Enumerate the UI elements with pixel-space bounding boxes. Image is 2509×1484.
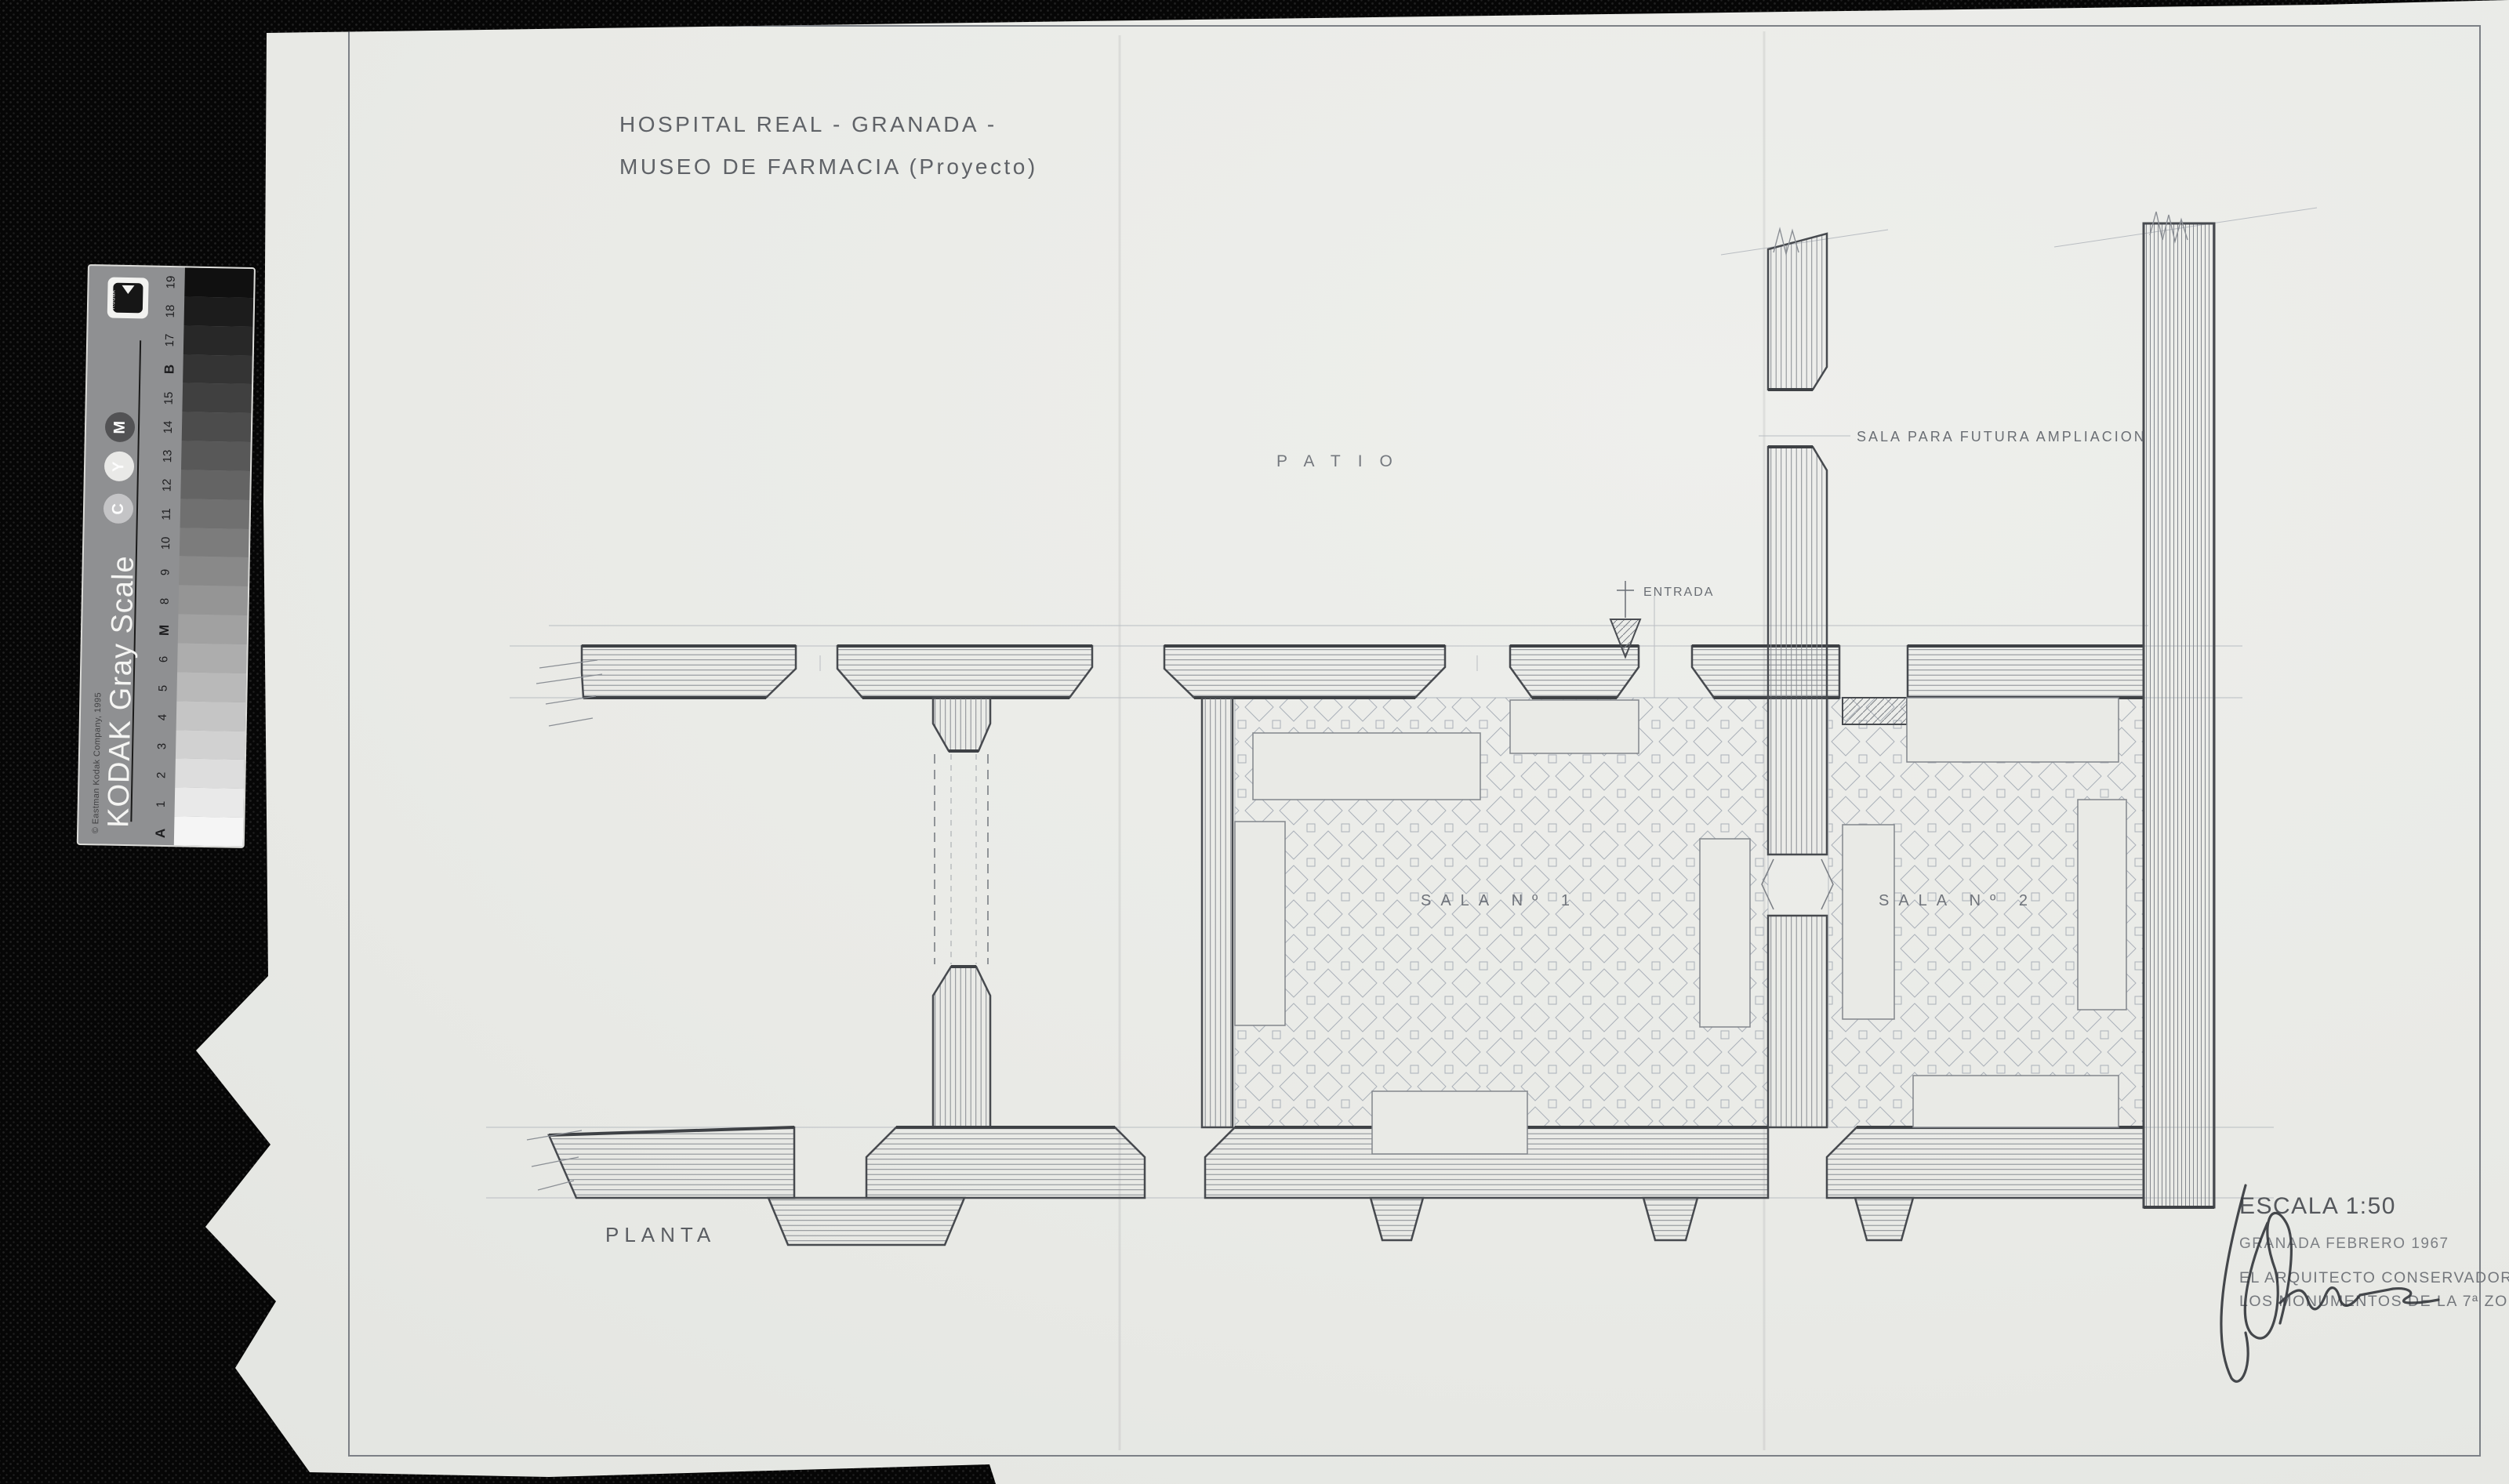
patio-column: [933, 698, 990, 1127]
entrance-label: ENTRADA: [1643, 586, 1714, 599]
gray-patch-1: [174, 787, 244, 818]
east-wall: [2144, 212, 2214, 1207]
door-sill-hatch: [1843, 698, 1907, 724]
magenta-dot: M: [105, 412, 136, 442]
place-date-label: GRANADA FEBRERO 1967: [2239, 1235, 2449, 1252]
partition-wall: [1762, 698, 1833, 1127]
gray-scale-patches: [174, 267, 254, 847]
gray-step-label-4: 4: [155, 707, 171, 727]
gray-patch-17: [183, 325, 253, 356]
gray-step-label-5: 5: [155, 678, 171, 698]
future-hall-label: SALA PARA FUTURA AMPLIACION: [1857, 429, 2147, 444]
gray-patch-B: [183, 354, 252, 385]
gray-step-label-11: 11: [159, 504, 175, 524]
gray-step-label-19: 19: [163, 271, 179, 292]
gray-step-label-8: 8: [158, 591, 173, 611]
patio-label: PATIO: [1276, 452, 1410, 470]
gray-step-label-M: M: [157, 620, 172, 640]
gray-step-label-10: 10: [158, 533, 174, 553]
gray-patch-5: [176, 672, 246, 702]
gray-patch-9: [179, 557, 249, 587]
gray-patch-18: [184, 296, 254, 327]
gray-step-label-B: B: [162, 358, 177, 379]
north-wall-piers: [582, 646, 2144, 698]
room1-west-wall: [1202, 698, 1233, 1127]
drawing-sheet: HOSPITAL REAL - GRANADA - MUSEO DE FARMA…: [0, 0, 2509, 1484]
plan-caption: PLANTA: [605, 1223, 716, 1246]
gray-patch-13: [181, 441, 251, 471]
sketch-strokes: [527, 660, 602, 1190]
gray-patch-4: [176, 701, 246, 731]
floor-plan-drawing: HOSPITAL REAL - GRANADA - MUSEO DE FARMA…: [0, 0, 2509, 1484]
gray-step-label-13: 13: [160, 446, 176, 466]
gray-patch-6: [177, 643, 247, 673]
scanned-photo: { "sheet": { "title_line1": "HOSPITAL RE…: [0, 0, 2509, 1484]
architect-line1: EL ARQUITECTO CONSERVADOR DE: [2239, 1269, 2509, 1286]
architect-line2: LOS MONUMENTOS DE LA 7ª ZONA: [2239, 1293, 2509, 1310]
gray-patch-14: [182, 412, 252, 443]
kodak-gray-scale-card: Kodak M Y C KODAK Gray Scale © Eastman K…: [77, 264, 256, 848]
future-hall-west-wall: [1768, 229, 1827, 698]
gray-scale-product-name: KODAK Gray Scale: [102, 555, 141, 828]
kodak-arrow-icon: [122, 285, 134, 294]
gray-step-label-18: 18: [163, 300, 179, 321]
room1-label: SALA Nº 1: [1421, 892, 1579, 909]
drawing-title-line1: HOSPITAL REAL - GRANADA -: [619, 112, 997, 136]
kodak-logo-icon: Kodak: [107, 277, 149, 318]
kodak-brand-text: Kodak: [109, 289, 116, 309]
gray-step-label-3: 3: [154, 736, 170, 757]
gray-scale-copyright: © Eastman Kodak Company, 1995: [91, 692, 103, 834]
gray-patch-19: [184, 267, 254, 298]
gray-patch-10: [180, 528, 249, 558]
gray-step-label-17: 17: [162, 329, 178, 350]
south-band-piers: [768, 1198, 1913, 1245]
room2-label: SALA Nº 2: [1879, 892, 2037, 909]
gray-patch-15: [182, 383, 252, 414]
gray-patch-12: [180, 470, 250, 500]
south-wall-band: [549, 1127, 2144, 1198]
scale-label: ESCALA 1:50: [2239, 1193, 2396, 1219]
gray-step-label-6: 6: [156, 649, 172, 669]
gray-step-label-14: 14: [161, 417, 176, 437]
gray-step-label-15: 15: [161, 388, 176, 408]
gray-step-label-12: 12: [159, 475, 175, 495]
gray-step-label-9: 9: [158, 562, 173, 582]
gray-patch-2: [175, 759, 245, 789]
gray-patch-11: [180, 499, 250, 529]
drawing-title-line2: MUSEO DE FARMACIA (Proyecto): [619, 154, 1038, 179]
cyan-dot: C: [103, 493, 134, 524]
gray-step-label-1: 1: [154, 794, 169, 815]
gray-patch-8: [178, 586, 248, 616]
gray-patch-A: [174, 816, 244, 847]
gray-patch-3: [176, 730, 245, 760]
gray-patch-M: [178, 614, 248, 644]
yellow-dot: Y: [104, 451, 135, 481]
gray-step-label-2: 2: [154, 765, 169, 786]
gray-step-label-A: A: [153, 823, 169, 844]
